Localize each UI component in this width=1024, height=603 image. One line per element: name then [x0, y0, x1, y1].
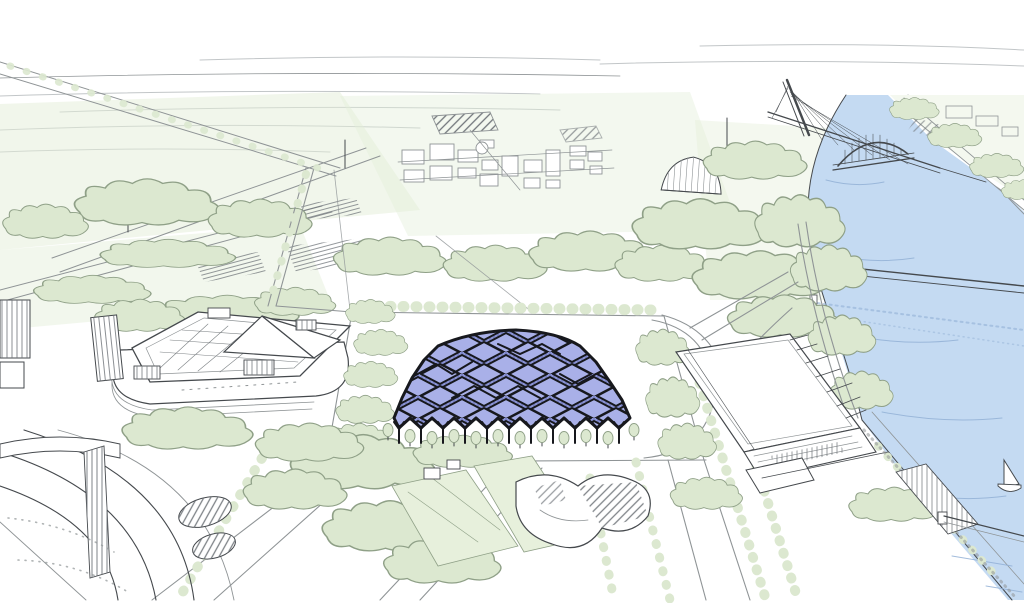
dark-roof-block: [432, 112, 498, 134]
kiosk: [447, 460, 460, 469]
aerial-illustration: [0, 0, 1024, 603]
kiosk: [424, 468, 440, 479]
spherical-tank: [476, 142, 488, 154]
